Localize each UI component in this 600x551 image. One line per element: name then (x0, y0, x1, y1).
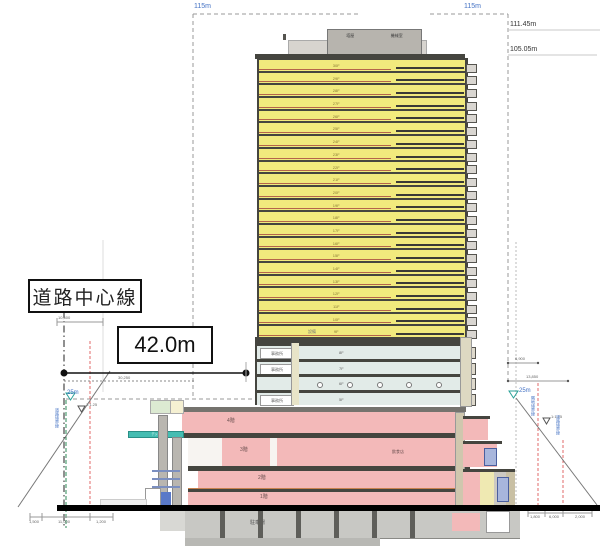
left-rack-1 (152, 470, 180, 472)
boundary-label-right-2: 道路境界線 (556, 415, 560, 435)
balcony-box (466, 267, 477, 276)
terrace-window-1 (484, 448, 497, 466)
tower-floor: 17F (259, 223, 465, 236)
floor-finish-line (259, 81, 391, 82)
balcony-rail (396, 143, 464, 145)
dim-upper-left: 10,600 (58, 316, 70, 320)
height-label-111m: 111.45m (510, 21, 536, 28)
floor-finish-line (259, 107, 391, 108)
balcony-rail (396, 270, 464, 272)
tower-floor: 14F (259, 261, 465, 274)
balcony-box (466, 191, 477, 200)
podium-3f-room: 3階 (222, 438, 270, 466)
tower-floor-label: 15F (259, 253, 414, 258)
tick (507, 380, 509, 382)
roof-note: 設備 (308, 330, 316, 334)
podium-2f-label: 2階 (258, 476, 266, 481)
balcony-box (466, 229, 477, 238)
floor-finish-line (259, 221, 391, 222)
left-rooftop-box-1 (150, 400, 172, 414)
bottom-dim-left-3: 1,200 (96, 520, 106, 524)
tower-floor-label: 27F (259, 101, 414, 106)
dim-right-1: 6,900 (515, 357, 525, 361)
bottom-dim-right-2: 6,000 (549, 515, 559, 519)
balcony-box (466, 127, 477, 136)
basement-column (296, 511, 301, 538)
mid-floor: 6F (257, 374, 462, 390)
tower-floor-label: 22F (259, 165, 414, 170)
tower-floor-label: 24F (259, 139, 414, 144)
tower-floor: 13F (259, 274, 465, 287)
distance-callout: 42.0m (117, 326, 213, 364)
floor-finish-line (259, 183, 391, 184)
mid-right-strip (460, 337, 472, 407)
tower-floor-label: 20F (259, 190, 414, 195)
floor-finish-line (259, 272, 391, 273)
mid-floor-label: 6F (339, 381, 344, 386)
floor-finish-line (259, 69, 391, 70)
penthouse-label-1: 塔屋 (346, 34, 354, 38)
balcony-box (466, 76, 477, 85)
balcony-rail (396, 206, 464, 208)
tower-floor: 11F (259, 299, 465, 312)
slope-marker-right (543, 418, 550, 424)
height-limit-label-left: 115m (194, 3, 211, 10)
tower-floor-label: 26F (259, 114, 414, 119)
dim-dashed-left: 30,250 (118, 376, 130, 380)
site-section-drawing: 115m 115m 111.45m 105.05m 塔屋 機械室 30F 29F (0, 0, 600, 551)
balcony-rail (396, 333, 464, 335)
balcony-rail (396, 194, 464, 196)
level-25m-label-right: 25m (519, 388, 531, 394)
tower-floor: 19F (259, 198, 465, 211)
tower-floor: 23F (259, 147, 465, 160)
balcony-rail (396, 67, 464, 69)
tower-floor: 21F (259, 172, 465, 185)
balcony-rail (396, 79, 464, 81)
podium-2f: 2階 (198, 471, 460, 488)
tower-floor-label: 11F (259, 304, 414, 309)
tower-floor-label: 17F (259, 228, 414, 233)
mid-core-strip (291, 343, 299, 405)
balcony-box (466, 114, 477, 123)
mid-floor: 事務所 7F (257, 359, 462, 375)
roof-antenna (283, 34, 286, 40)
balcony-box (466, 241, 477, 250)
balcony-box (466, 64, 477, 73)
floor-finish-line (259, 284, 391, 285)
height-limit-label-right: 115m (464, 3, 481, 10)
mid-floor-room-box: 事務所 (260, 348, 294, 359)
balcony-box (466, 89, 477, 98)
tower-floor: 15F (259, 248, 465, 261)
balcony-rail (396, 168, 464, 170)
tower-floor-label: 18F (259, 215, 414, 220)
tower-floor: 18F (259, 210, 465, 223)
road-center-label: 道路中心線 (32, 283, 137, 310)
podium-3f-room-right: 飲食店 (277, 438, 460, 466)
mid-floor: 事務所 8F (257, 343, 462, 359)
bottom-dim-right-1: 1,800 (530, 515, 540, 519)
balcony-rail (396, 295, 464, 297)
tower-floor-label: 19F (259, 203, 414, 208)
column-circles (317, 382, 442, 388)
tower-floor-label: 10F (259, 317, 414, 322)
bottom-dim-right-3: 2,000 (575, 515, 585, 519)
floor-finish-line (259, 196, 391, 197)
floor-finish-line (259, 145, 391, 146)
balcony-box (466, 292, 477, 301)
tick (567, 380, 569, 382)
balcony-box (466, 317, 477, 326)
boundary-label-left: 道路境界線 (55, 408, 59, 428)
mid-floor-label: 5F (339, 397, 344, 402)
balcony-box (466, 203, 477, 212)
floor-finish-line (259, 119, 391, 120)
tower-residential: 30F 29F 28F 27F (257, 58, 468, 337)
basement-ramp (160, 511, 185, 531)
floor-finish-line (259, 132, 391, 133)
tower-floor: 30F (259, 58, 465, 71)
basement-pit (185, 538, 380, 546)
balcony-rail (396, 232, 464, 234)
floor-finish-line (259, 94, 391, 95)
balcony-rail (396, 181, 464, 183)
balcony-rail (396, 257, 464, 259)
bottom-dim-left-1: 1,500 (29, 520, 39, 524)
balcony-box (466, 153, 477, 162)
balcony-box (466, 140, 477, 149)
dimension-42m-dot-left (61, 370, 68, 377)
balcony-rail (396, 308, 464, 310)
tower-floor: 25F (259, 121, 465, 134)
tower-floor-label: 21F (259, 177, 414, 182)
basement-room-pink (452, 513, 480, 531)
tick (507, 362, 509, 364)
slope-label-left: 1:1.25 (86, 403, 97, 407)
tower-floor: 22F (259, 160, 465, 173)
terrace-room-1 (463, 419, 488, 440)
tower-floor: 24F (259, 134, 465, 147)
tower-floor: 20F (259, 185, 465, 198)
podium-1f: 1階 (188, 492, 460, 505)
left-blue-box (161, 492, 171, 505)
floor-finish-line (259, 208, 391, 209)
dim-right-2: 13,850 (526, 375, 538, 379)
floor-finish-line (259, 234, 391, 235)
left-rooftop-box-2 (170, 400, 184, 414)
basement-column (372, 511, 377, 538)
balcony-rail (396, 130, 464, 132)
floor-finish-line (259, 322, 391, 323)
terrace-room-3b (480, 472, 494, 505)
mid-floor-room-box: 事務所 (260, 395, 294, 406)
level-marker-right (509, 391, 518, 398)
balcony-rail (396, 105, 464, 107)
basement-column (410, 511, 415, 538)
floor-finish-line (259, 259, 391, 260)
road-center-callout: 道路中心線 (28, 279, 142, 313)
basement-column (220, 511, 225, 538)
balcony-rail (396, 156, 464, 158)
tower-floor-label: 14F (259, 266, 414, 271)
balcony-rail (396, 117, 464, 119)
basement-room-white (486, 511, 510, 533)
floor-finish-line (259, 310, 391, 311)
podium-room-right-label: 飲食店 (392, 450, 404, 454)
floor-finish-line (259, 246, 391, 247)
tower-floor-label: 16F (259, 241, 414, 246)
tower-floor: 12F (259, 286, 465, 299)
floor-finish-line (259, 335, 391, 336)
balcony-rail (396, 282, 464, 284)
tower-floor: 10F (259, 312, 465, 325)
tower-floor: 26F (259, 109, 465, 122)
tower-floor-label: 9F (259, 329, 414, 334)
basement-column (258, 511, 263, 538)
mid-floor-label: 7F (339, 366, 344, 371)
mid-floor-label: 8F (339, 350, 344, 355)
tower-floor: 29F (259, 71, 465, 84)
balcony-box (466, 216, 477, 225)
tower-floor-label: 13F (259, 279, 414, 284)
tick (537, 362, 539, 364)
basement-column (334, 511, 339, 538)
height-label-105m: 105.05m (510, 46, 537, 53)
penthouse-label-2: 機械室 (391, 34, 403, 38)
podium-4f: 4階 (182, 412, 460, 433)
podium-3f-label: 3階 (240, 448, 248, 453)
balcony-box (466, 178, 477, 187)
tower-floor: 16F (259, 236, 465, 249)
balcony-rail (396, 320, 464, 322)
balcony-box (466, 254, 477, 263)
tower-floor-label: 25F (259, 126, 414, 131)
mid-floor: 事務所 5F (257, 390, 462, 406)
level-25m-label-left: 25m (67, 390, 79, 396)
floor-finish-line (259, 297, 391, 298)
bottom-dim-left-2: 11,000 (58, 520, 70, 524)
mid-floor-room-box: 事務所 (260, 364, 294, 375)
tower-floor: 27F (259, 96, 465, 109)
left-rack-2 (152, 478, 180, 480)
podium-4f-label: 4階 (227, 419, 235, 424)
floor-finish-line (259, 158, 391, 159)
floor-finish-line (259, 170, 391, 171)
terrace-room-3a (463, 472, 480, 505)
tower-floor-label: 29F (259, 76, 414, 81)
terrace-window-2 (497, 477, 509, 502)
left-column-2 (172, 437, 182, 507)
penthouse: 塔屋 機械室 (327, 29, 422, 57)
tower-floor: 28F (259, 83, 465, 96)
balcony-box (466, 165, 477, 174)
balcony-box (466, 305, 477, 314)
podium-1f-label: 1階 (260, 495, 268, 500)
distance-label: 42.0m (134, 332, 195, 358)
balcony-box (466, 279, 477, 288)
boundary-label-right-1: 隣地境界線 (531, 396, 535, 416)
tower-floor-label: 28F (259, 88, 414, 93)
balcony-rail (396, 92, 464, 94)
tower-floor-label: 30F (259, 63, 414, 68)
balcony-box (466, 102, 477, 111)
balcony-rail (396, 219, 464, 221)
mid-section: 事務所 8F 事務所 7F 6F 事務所 5F (255, 343, 462, 405)
balcony-rail (396, 244, 464, 246)
tower-floor-label: 23F (259, 152, 414, 157)
tower-floor-label: 12F (259, 291, 414, 296)
tower-floor: 9F (259, 324, 465, 337)
